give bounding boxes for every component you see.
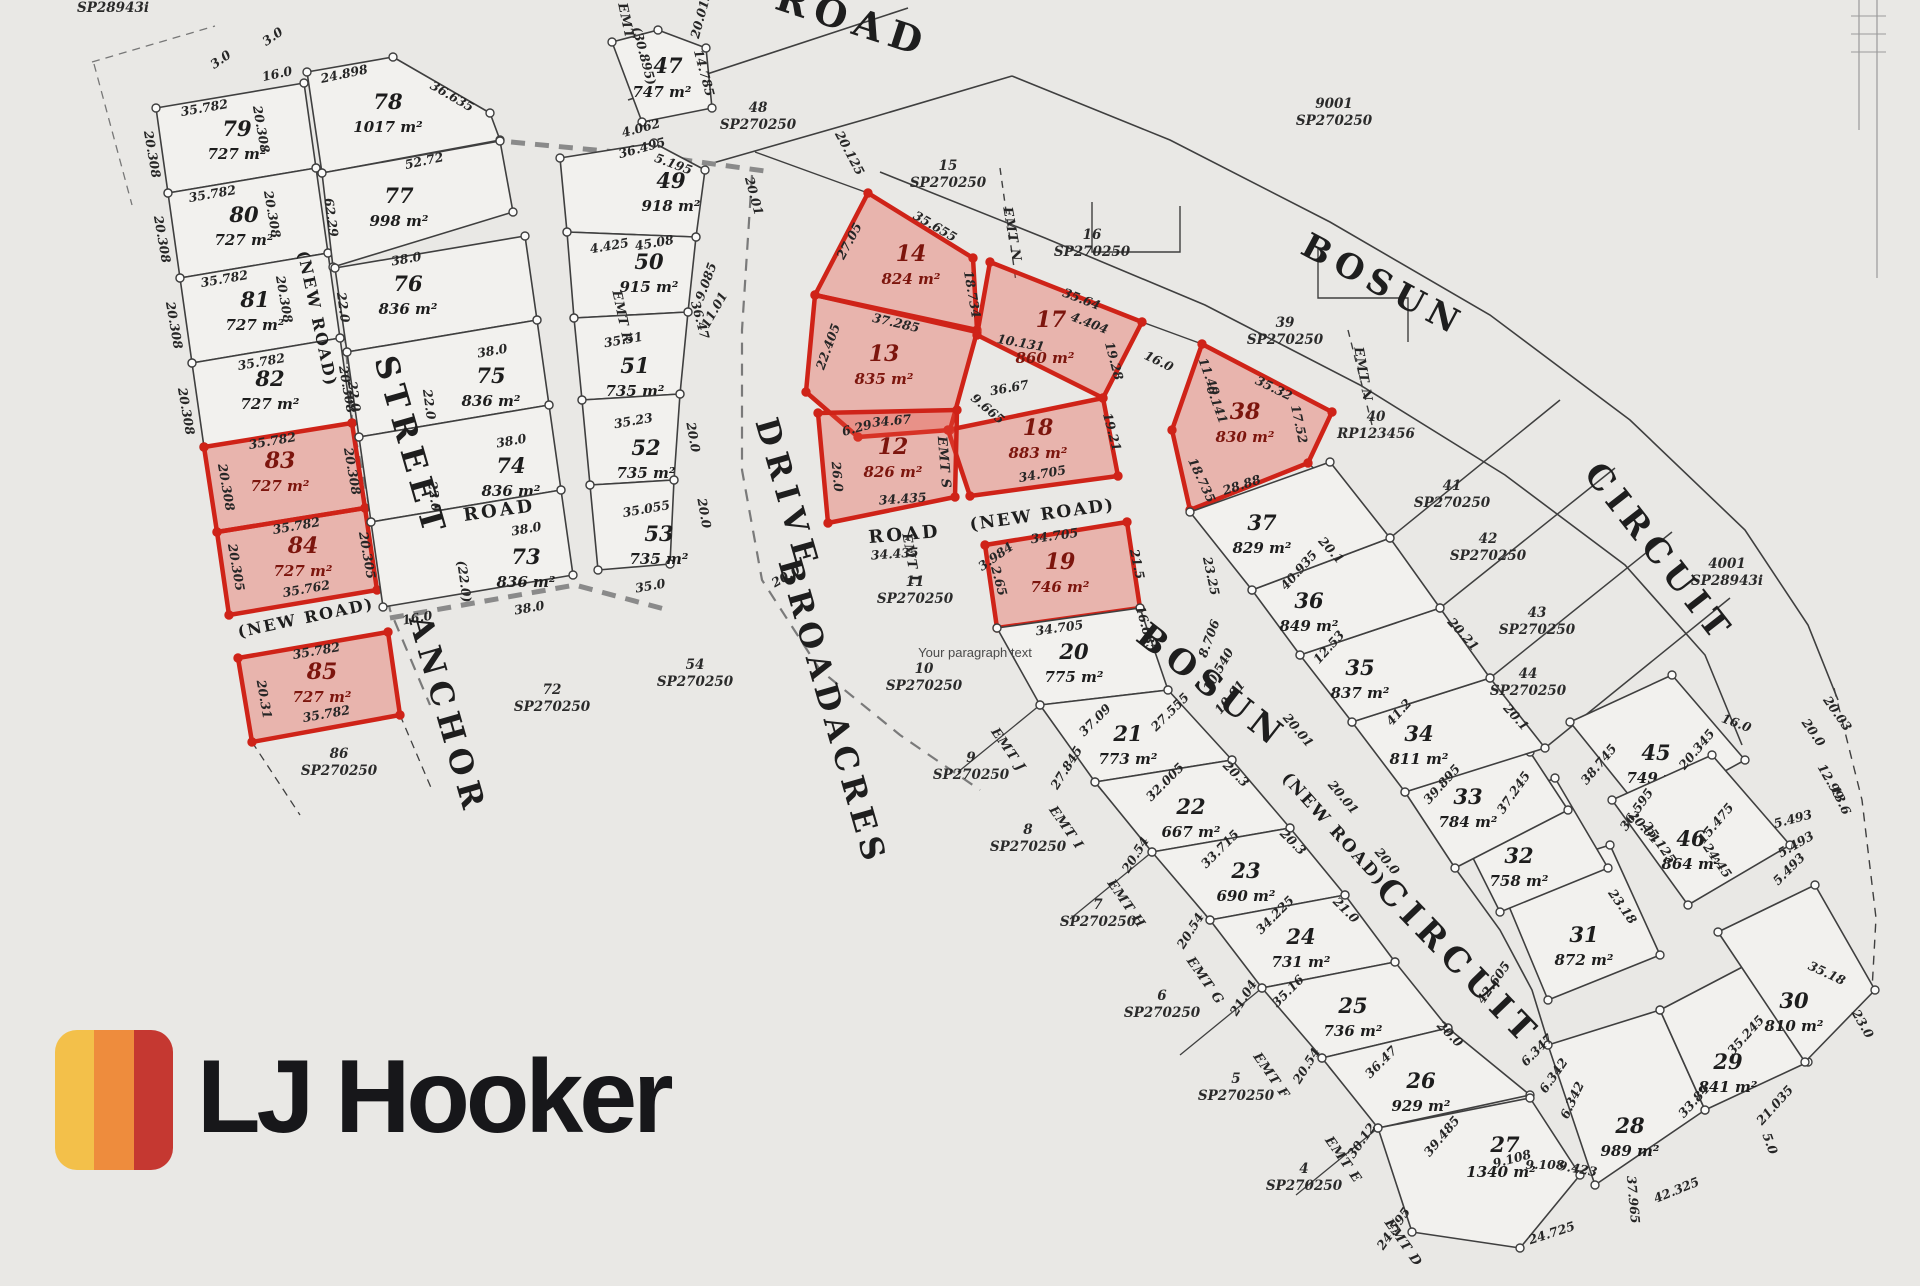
dimension-label: 3.0 (259, 24, 286, 49)
lot-corner-node (545, 401, 553, 409)
lot-81-number: 81 (239, 287, 269, 312)
plan-reference-plan: RP123456 (1336, 426, 1415, 442)
lot-corner-node (188, 359, 196, 367)
lot-33-area: 784 m² (1439, 813, 1498, 831)
lot-corner-node (811, 291, 819, 299)
dimension-label: 20.308 (175, 385, 198, 436)
lot-81-area: 727 m² (226, 316, 285, 334)
dimension-label: 26.0 (829, 460, 847, 493)
street-name-circuit: CIRCUIT (1576, 455, 1742, 652)
lot-51-number: 51 (620, 353, 649, 378)
lot-corner-node (1526, 1094, 1534, 1102)
lot-corner-node (1564, 806, 1572, 814)
lot-31-area: 872 m² (1555, 951, 1614, 969)
lot-corner-node (676, 390, 684, 398)
lot-24-area: 731 m² (1272, 953, 1331, 971)
lot-79-number: 79 (222, 116, 252, 141)
lot-corner-node (379, 603, 387, 611)
plan-reference-number: 7 (1093, 897, 1103, 913)
plan-reference-plan: SP270250 (1198, 1088, 1275, 1104)
lot-corner-node (1486, 674, 1494, 682)
plan-reference-plan: SP270250 (720, 117, 797, 133)
lot-corner-node (969, 254, 977, 262)
plan-reference-number: 5 (1231, 1071, 1240, 1087)
easement-label: EMT N (1350, 345, 1375, 403)
lot-corner-node (556, 154, 564, 162)
plan-reference-plan: SP270250 (933, 767, 1010, 783)
lot-21-area: 773 m² (1099, 750, 1158, 768)
lot-22-number: 22 (1175, 794, 1205, 819)
lot-76-number: 76 (393, 271, 423, 296)
plan-reference-plan: SP270250 (1296, 113, 1373, 129)
lot-corner-node (1091, 778, 1099, 786)
lot-corner-node (1871, 986, 1879, 994)
lot-35-number: 35 (1345, 655, 1374, 680)
lot-corner-node (1138, 318, 1146, 326)
lot-corner-node (361, 504, 369, 512)
dimension-label: 20.308 (163, 299, 186, 350)
lot-corner-node (557, 486, 565, 494)
lot-31-number: 31 (1569, 922, 1598, 947)
lot-32-number: 32 (1504, 843, 1533, 868)
plan-reference-number: 4 (1299, 1161, 1308, 1177)
lot-corner-node (981, 541, 989, 549)
lot-36-area: 849 m² (1280, 617, 1339, 635)
lot-30-area: 810 m² (1765, 1017, 1824, 1035)
lot-76-area: 836 m² (379, 300, 438, 318)
easement-label: EMT N (999, 205, 1024, 263)
dimension-label: 20.54 (1118, 834, 1152, 876)
street-name-bosun: BOSUN (1295, 226, 1472, 345)
plan-reference-number: 41 (1443, 478, 1462, 494)
lot-corner-node (509, 208, 517, 216)
lot-corner-node (300, 79, 308, 87)
lot-corner-node (1668, 671, 1676, 679)
lot-corner-node (331, 264, 339, 272)
dimension-label: 21.04 (1226, 977, 1260, 1019)
dimension-label: 20.54 (1289, 1045, 1323, 1087)
plan-reference-number: 9001 (1315, 96, 1353, 112)
lot-80-area: 727 m² (215, 231, 274, 249)
street-name-drive: DRIVE (747, 414, 827, 577)
easement-label: EMT (614, 1, 637, 42)
dimension-label: 20.01 (742, 174, 767, 217)
plan-reference-plan: SP270250 (1450, 548, 1527, 564)
dimension-label: 20.015 (687, 0, 714, 41)
plan-reference-number: 39 (1276, 315, 1295, 331)
lot-corner-node (563, 228, 571, 236)
lot-corner-node (348, 419, 356, 427)
watermark-text: Your paragraph text (880, 645, 1070, 660)
dimension-label: 42.325 (1651, 1174, 1701, 1206)
lot-73-number: 73 (511, 544, 540, 569)
lot-25-number: 25 (1337, 993, 1367, 1018)
lot-corner-node (1391, 958, 1399, 966)
lot-corner-node (389, 53, 397, 61)
lot-84-number: 84 (287, 533, 319, 559)
lot-13-area: 835 m² (855, 370, 914, 388)
lot-53-area: 735 m² (630, 550, 689, 568)
dimension-label: 20.54 (1173, 910, 1207, 952)
lot-corner-node (384, 628, 392, 636)
lot-corner-node (1591, 1181, 1599, 1189)
lot-corner-node (1656, 1006, 1664, 1014)
dimension-label: 23.25 (1200, 554, 1223, 596)
lot-corner-node (533, 316, 541, 324)
lot-corner-node (336, 334, 344, 342)
lot-corner-node (701, 166, 709, 174)
lot-corner-node (708, 104, 716, 112)
dimension-label: 20.0 (694, 496, 714, 530)
lot-corner-node (1036, 701, 1044, 709)
plan-reference-number: 4001 (1708, 556, 1746, 572)
lot-78-area: 1017 m² (353, 118, 423, 136)
lot-corner-node (1248, 586, 1256, 594)
plan-reference-plan: SP270250 (1266, 1178, 1343, 1194)
lot-corner-node (355, 433, 363, 441)
lot-17-area: 860 m² (1016, 349, 1075, 367)
lot-corner-node (521, 232, 529, 240)
lot-14-area: 824 m² (882, 270, 941, 288)
dimension-label: 21.035 (1752, 1082, 1796, 1128)
dimension-label: 20.125 (832, 127, 868, 177)
dimension-label: 38.0 (513, 597, 546, 617)
lot-77-area: 998 m² (370, 212, 429, 230)
lot-corner-node (1551, 774, 1559, 782)
lot-34-number: 34 (1404, 721, 1433, 746)
plan-reference-plan: SP270250 (877, 591, 954, 607)
plan-reference-plan: SP270250 (1054, 244, 1131, 260)
lot-20-area: 775 m² (1045, 668, 1104, 686)
dimension-label: 20.0 (683, 420, 703, 454)
lot-corner-node (343, 348, 351, 356)
lot-77-number: 77 (384, 183, 414, 208)
logo-bar-yellow (55, 1030, 94, 1170)
lot-corner-node (1741, 756, 1749, 764)
lot-corner-node (864, 189, 872, 197)
lot-corner-node (966, 492, 974, 500)
lot-83-area: 727 m² (251, 477, 310, 495)
plan-reference-number: 11 (906, 574, 925, 590)
plan-reference-plan: SP270250 (1247, 332, 1324, 348)
lot-83-number: 83 (264, 448, 296, 474)
lot-corner-node (670, 476, 678, 484)
lot-corner-node (1186, 508, 1194, 516)
plan-reference-number: 8 (1023, 822, 1033, 838)
lot-corner-node (951, 493, 959, 501)
plan-reference-number: 72 (543, 682, 562, 698)
plan-reference-plan: SP270250 (1490, 683, 1567, 699)
lot-corner-node (1123, 518, 1131, 526)
lot-corner-node (608, 38, 616, 46)
lot-50-area: 915 m² (620, 278, 679, 296)
lot-85-number: 85 (306, 659, 338, 685)
lot-17-number: 17 (1036, 307, 1067, 333)
dimension-label: 13.6 (1828, 783, 1855, 817)
lot-12-number: 12 (878, 434, 909, 460)
plan-reference-number: 15 (939, 158, 958, 174)
lot-52-area: 735 m² (617, 464, 676, 482)
lot-19-number: 19 (1045, 549, 1076, 575)
lot-35-area: 837 m² (1331, 684, 1390, 702)
plan-reference-number: 86 (330, 746, 349, 762)
lot-corner-node (1608, 796, 1616, 804)
plan-reference-plan: SP270250 (514, 699, 591, 715)
lot-53-number: 53 (644, 521, 673, 546)
lot-50-polygon (567, 232, 696, 318)
subdivision-plan-page: 79727 m²80727 m²81727 m²82727 m²83727 m²… (0, 0, 1920, 1286)
lot-45-number: 45 (1641, 740, 1670, 765)
lot-38-number: 38 (1230, 399, 1261, 425)
street-name-anchor: ANCHOR (401, 610, 495, 820)
lot-33-number: 33 (1453, 784, 1482, 809)
lot-corner-node (1606, 841, 1614, 849)
lot-corner-node (1164, 686, 1172, 694)
lot-22-area: 667 m² (1162, 823, 1221, 841)
lot-corner-node (1604, 864, 1612, 872)
lot-corner-node (225, 611, 233, 619)
lot-corner-node (594, 566, 602, 574)
lot-corner-node (973, 331, 981, 339)
lot-corner-node (1296, 651, 1304, 659)
lot-23-number: 23 (1230, 858, 1260, 883)
ljhooker-logo-text: LJ Hooker (197, 1040, 670, 1154)
lot-49-area: 918 m² (642, 197, 701, 215)
plan-reference-plan: SP270250 (1414, 495, 1491, 511)
lot-corner-node (1701, 1106, 1709, 1114)
plan-reference-number: 6 (1157, 988, 1167, 1004)
dimension-label: 27.845 (1047, 743, 1086, 792)
lot-corner-node (824, 519, 832, 527)
lot-corner-node (570, 314, 578, 322)
lot-corner-node (234, 654, 242, 662)
lot-corner-node (367, 518, 375, 526)
boundary-line (252, 742, 300, 815)
lot-corner-node (303, 68, 311, 76)
lot-28-area: 989 m² (1601, 1142, 1660, 1160)
lot-corner-node (1544, 996, 1552, 1004)
lot-corner-node (1684, 901, 1692, 909)
plan-reference-number: 42 (1479, 531, 1498, 547)
street-name-road: ROAD (868, 521, 942, 548)
lot-corner-node (1714, 928, 1722, 936)
lot-19-area: 746 m² (1031, 578, 1090, 596)
lot-34-area: 811 m² (1390, 750, 1449, 768)
street-name-road: ROAD (771, 0, 936, 66)
lot-corner-node (164, 189, 172, 197)
lot-corner-node (802, 388, 810, 396)
plan-reference-number: 10 (915, 661, 934, 677)
dimension-label: 16.0 (1142, 348, 1176, 375)
lot-37-area: 829 m² (1233, 539, 1292, 557)
lot-73-area: 836 m² (497, 573, 556, 591)
logo-bar-red (134, 1030, 173, 1170)
lot-14-number: 14 (896, 241, 927, 267)
lot-18-area: 883 m² (1009, 444, 1068, 462)
lot-corner-node (1656, 951, 1664, 959)
plan-reference-number: SP28943i (77, 0, 149, 16)
logo-bar-orange (94, 1030, 133, 1170)
easement-label: EMT G (1182, 954, 1226, 1008)
lot-78-number: 78 (373, 89, 403, 114)
lot-corner-node (1386, 534, 1394, 542)
lot-82-area: 727 m² (241, 395, 300, 413)
lot-corner-node (1516, 1244, 1524, 1252)
ljhooker-logo-mark-icon (55, 1030, 173, 1170)
lot-12-area: 826 m² (864, 463, 923, 481)
lot-52-number: 52 (631, 435, 660, 460)
boundary-line (1390, 400, 1560, 538)
lot-corner-node (1348, 718, 1356, 726)
lot-corner-node (1304, 459, 1312, 467)
lot-corner-node (1401, 788, 1409, 796)
lot-corner-node (496, 137, 504, 145)
lot-28-number: 28 (1614, 1113, 1645, 1138)
lot-23-area: 690 m² (1217, 887, 1276, 905)
lot-corner-node (152, 104, 160, 112)
lot-corner-node (1206, 916, 1214, 924)
dimension-label: 20.308 (151, 213, 174, 264)
lot-corner-node (1148, 848, 1156, 856)
plan-reference-plan: SP270250 (1124, 1005, 1201, 1021)
plan-reference-plan: SP270250 (301, 763, 378, 779)
plan-reference-number: 40 (1367, 409, 1386, 425)
plan-reference-plan: SP270250 (1499, 622, 1576, 638)
ljhooker-logo: LJ Hooker (55, 1030, 670, 1170)
lot-30-number: 30 (1779, 988, 1809, 1013)
lot-corner-node (953, 406, 961, 414)
dimension-label: 23.0 (1848, 1006, 1877, 1041)
lot-corner-node (814, 409, 822, 417)
lot-corner-node (486, 109, 494, 117)
dimension-label: 5.493 (1772, 806, 1814, 831)
lot-corner-node (986, 258, 994, 266)
lot-26-area: 929 m² (1392, 1097, 1451, 1115)
dimension-label: 20.0 (1798, 715, 1828, 750)
plan-reference-plan: SP270250 (886, 678, 963, 694)
lot-corner-node (578, 396, 586, 404)
lot-80-number: 80 (228, 202, 259, 227)
lot-corner-node (200, 443, 208, 451)
lot-47-area: 747 m² (633, 83, 692, 101)
lot-corner-node (1198, 340, 1206, 348)
lot-13-number: 13 (869, 341, 900, 367)
lot-corner-node (692, 233, 700, 241)
lot-corner-node (1408, 1228, 1416, 1236)
plan-reference-plan: SP270250 (657, 674, 734, 690)
dimension-label: 3.0 (207, 47, 234, 72)
lot-corner-node (654, 26, 662, 34)
boundary-line (94, 64, 132, 205)
lot-corner-node (1801, 1058, 1809, 1066)
lot-25-area: 736 m² (1324, 1022, 1383, 1040)
lot-corner-node (1168, 426, 1176, 434)
plan-reference-number: 48 (749, 100, 768, 116)
dimension-label: 16.0 (261, 63, 294, 84)
lot-corner-node (1099, 394, 1107, 402)
lot-corner-node (1328, 408, 1336, 416)
lot-corner-node (1541, 744, 1549, 752)
boundary-line (1142, 322, 1202, 344)
lot-corner-node (569, 571, 577, 579)
lot-corner-node (213, 528, 221, 536)
lot-corner-node (1451, 864, 1459, 872)
dimension-label: 20.03 (1820, 692, 1855, 734)
lot-21-number: 21 (1112, 721, 1142, 746)
dimension-label: 37.965 (1624, 1175, 1643, 1224)
plan-reference-number: 16 (1083, 227, 1102, 243)
plan-reference-plan: SP270250 (910, 175, 987, 191)
lot-corner-node (1326, 458, 1334, 466)
lot-32-area: 758 m² (1490, 872, 1549, 890)
lot-37-number: 37 (1247, 510, 1277, 535)
plan-reference-plan: SP270250 (1060, 914, 1137, 930)
lot-74-number: 74 (496, 453, 525, 478)
lot-corner-node (1708, 751, 1716, 759)
lot-75-number: 75 (476, 363, 505, 388)
dimension-label: 5.0 (1759, 1131, 1781, 1157)
lot-corner-node (318, 169, 326, 177)
lot-36-number: 36 (1294, 588, 1324, 613)
lot-24-number: 24 (1285, 924, 1315, 949)
lot-corner-node (1496, 908, 1504, 916)
plan-reference-number: 9 (966, 750, 976, 766)
lot-38-area: 830 m² (1216, 428, 1275, 446)
plan-reference-number: 54 (686, 657, 705, 673)
lot-corner-node (586, 481, 594, 489)
plan-reference-plan: SP270250 (990, 839, 1067, 855)
dimension-label: 36.67 (989, 377, 1030, 399)
lot-corner-node (1114, 472, 1122, 480)
lot-corner-node (176, 274, 184, 282)
lot-corner-node (1811, 881, 1819, 889)
lot-75-area: 836 m² (462, 392, 521, 410)
boundary-line (92, 26, 215, 62)
lot-corner-node (1436, 604, 1444, 612)
lot-corner-node (1566, 718, 1574, 726)
dimension-label: 35.0 (634, 575, 667, 595)
plan-reference-number: 43 (1528, 605, 1547, 621)
boundary-line (400, 715, 432, 790)
lot-82-number: 82 (254, 366, 284, 391)
lot-corner-node (396, 711, 404, 719)
plan-reference-number: 44 (1519, 666, 1538, 682)
lot-corner-node (993, 624, 1001, 632)
lot-corner-node (248, 738, 256, 746)
lot-26-number: 26 (1405, 1068, 1436, 1093)
lot-18-number: 18 (1023, 415, 1054, 441)
